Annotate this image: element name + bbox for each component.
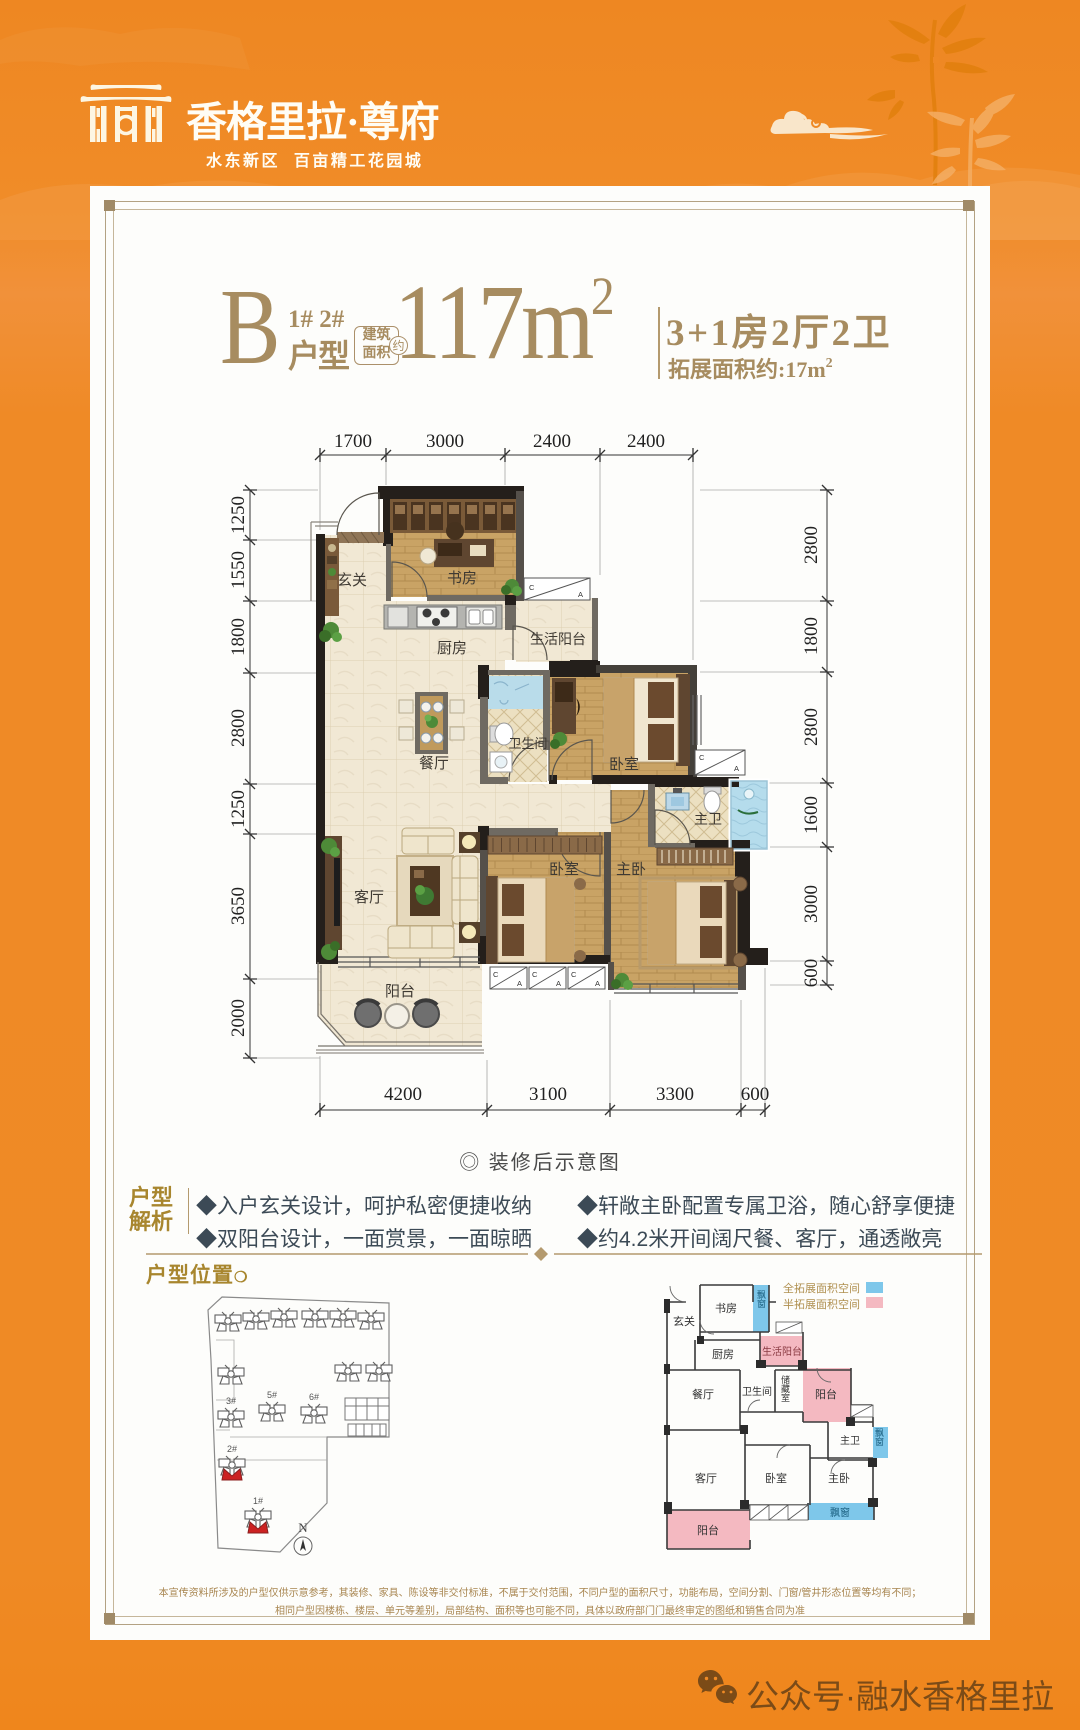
svg-text:3300: 3300: [656, 1084, 694, 1105]
svg-text:1800: 1800: [228, 618, 249, 656]
svg-text:飘窗: 飘窗: [875, 1428, 884, 1447]
svg-text:N: N: [298, 1520, 308, 1535]
svg-text:卧室: 卧室: [549, 861, 579, 878]
svg-text:5#: 5#: [267, 1390, 277, 1400]
svg-text:全拓展面积空间: 全拓展面积空间: [783, 1281, 860, 1295]
svg-text:A: A: [578, 590, 583, 599]
svg-text:书房: 书房: [447, 570, 477, 587]
svg-text:3100: 3100: [529, 1084, 567, 1105]
svg-text:1800: 1800: [801, 617, 822, 655]
svg-text:C: C: [493, 970, 499, 979]
svg-text:6#: 6#: [309, 1392, 319, 1402]
svg-text:2#: 2#: [227, 1444, 237, 1454]
svg-text:书房: 书房: [715, 1302, 737, 1315]
svg-text:A: A: [595, 979, 600, 988]
svg-text:厨房: 厨房: [712, 1348, 734, 1361]
svg-text:A: A: [517, 979, 522, 988]
svg-text:2800: 2800: [801, 526, 822, 564]
svg-text:600: 600: [801, 959, 822, 988]
svg-text:3#: 3#: [226, 1396, 236, 1406]
svg-text:1250: 1250: [228, 790, 249, 828]
svg-text:1700: 1700: [334, 431, 372, 452]
svg-text:卧室: 卧室: [609, 756, 639, 773]
svg-text:1250: 1250: [228, 496, 249, 534]
svg-text:半拓展面积空间: 半拓展面积空间: [783, 1297, 860, 1311]
svg-text:储藏室: 储藏室: [781, 1374, 790, 1403]
svg-text:卫生间: 卫生间: [508, 736, 547, 751]
svg-text:客厅: 客厅: [354, 889, 384, 906]
svg-text:生活阳台: 生活阳台: [530, 631, 586, 647]
svg-text:C: C: [571, 970, 577, 979]
svg-text:2400: 2400: [627, 431, 665, 452]
svg-text:客厅: 客厅: [695, 1471, 717, 1485]
svg-text:A: A: [734, 764, 739, 773]
svg-text:玄关: 玄关: [337, 572, 367, 589]
svg-text:主卧: 主卧: [616, 861, 646, 878]
svg-text:2000: 2000: [228, 999, 249, 1037]
svg-text:餐厅: 餐厅: [692, 1387, 714, 1401]
svg-text:1550: 1550: [228, 551, 249, 589]
svg-text:餐厅: 餐厅: [419, 755, 449, 772]
svg-text:飘窗: 飘窗: [830, 1506, 850, 1519]
svg-text:玄关: 玄关: [673, 1314, 695, 1328]
svg-text:2400: 2400: [533, 431, 571, 452]
svg-text:生活阳台: 生活阳台: [762, 1345, 802, 1358]
svg-text:1600: 1600: [801, 796, 822, 834]
svg-text:飘窗: 飘窗: [757, 1290, 766, 1309]
svg-text:主卧: 主卧: [828, 1472, 850, 1485]
svg-text:600: 600: [741, 1084, 770, 1105]
svg-text:主卫: 主卫: [840, 1435, 860, 1447]
svg-text:阳台: 阳台: [697, 1523, 719, 1537]
svg-text:2800: 2800: [801, 708, 822, 746]
svg-text:C: C: [699, 753, 705, 762]
svg-text:厨房: 厨房: [437, 640, 467, 657]
svg-text:3650: 3650: [228, 887, 249, 925]
svg-text:卫生间: 卫生间: [742, 1385, 772, 1398]
svg-text:阳台: 阳台: [385, 983, 415, 1000]
svg-text:2800: 2800: [228, 709, 249, 747]
svg-text:卧室: 卧室: [765, 1471, 787, 1485]
svg-text:C: C: [532, 970, 538, 979]
svg-text:阳台: 阳台: [815, 1387, 837, 1401]
svg-text:3000: 3000: [801, 885, 822, 923]
svg-text:A: A: [556, 979, 561, 988]
svg-text:C: C: [529, 583, 535, 592]
svg-text:1#: 1#: [253, 1496, 263, 1506]
svg-text:4200: 4200: [384, 1084, 422, 1105]
svg-text:主卫: 主卫: [694, 811, 722, 827]
svg-text:3000: 3000: [426, 431, 464, 452]
